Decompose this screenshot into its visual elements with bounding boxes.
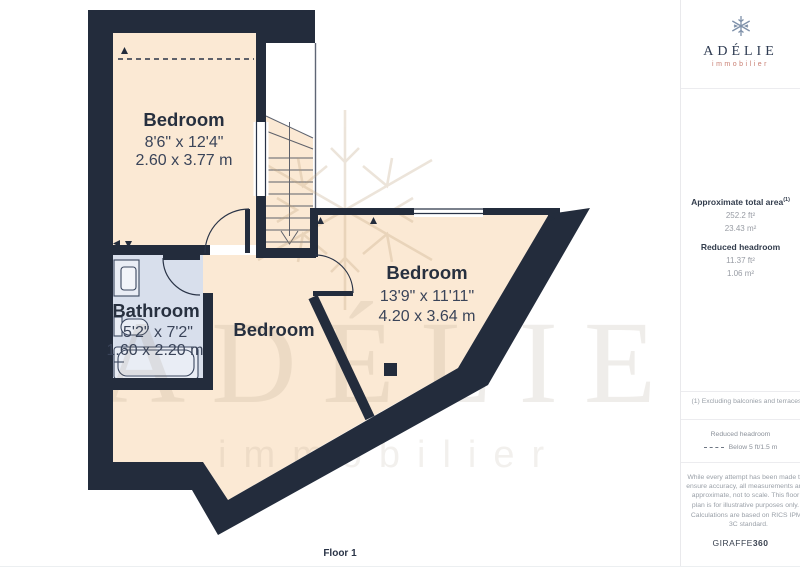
door-leaf [163, 255, 200, 260]
divider [681, 462, 800, 463]
reduced-headroom-title: Reduced headroom [681, 242, 800, 252]
legend-row: Below 5 ft/1.5 m [681, 444, 800, 451]
room-label-bedroom-right: Bedroom [386, 262, 467, 283]
legend-title: Reduced headroom [681, 431, 800, 438]
area-footnote: (1) Excluding balconies and terraces [681, 398, 800, 405]
room-dim-metric: 2.60 x 3.77 m [136, 152, 233, 169]
room-label-bedroom-middle: Bedroom [233, 319, 314, 340]
disclaimer-text: While every attempt has been made to ens… [681, 473, 800, 510]
floorplan-svg: ADÉLIE immobilier [0, 0, 680, 566]
room-dim-imperial: 8'6" x 12'4" [145, 134, 224, 151]
info-panel: ADÉLIE immobilier Approximate total area… [680, 0, 800, 566]
standard-text: Calculations are based on RICS IPMS 3C s… [681, 511, 800, 529]
reduced-headroom-metric: 1.06 m² [681, 269, 800, 278]
logo-name: ADÉLIE [681, 44, 800, 60]
floorplan-canvas: ADÉLIE immobilier [0, 0, 680, 566]
floor-label: Floor 1 [323, 548, 357, 559]
logo [681, 14, 800, 43]
total-area-imperial: 252.2 ft² [681, 211, 800, 220]
column [384, 363, 397, 376]
room-label-bathroom: Bathroom [112, 300, 199, 321]
giraffe360-brand: GIRAFFE360 [681, 538, 800, 548]
room-dim-metric: 1.60 x 2.20 m [107, 342, 204, 359]
area-stats: Approximate total area(1) 252.2 ft² 23.4… [681, 188, 800, 278]
divider [681, 391, 800, 392]
watermark-tagline: immobilier [218, 434, 561, 476]
legend-label: Below 5 ft/1.5 m [729, 444, 778, 451]
door-leaf [313, 291, 353, 296]
door-leaf [245, 209, 250, 253]
sink-basin-icon [121, 267, 136, 290]
total-area-title: Approximate total area(1) [681, 197, 800, 207]
snowflake-icon [730, 14, 752, 38]
divider [681, 419, 800, 420]
room-dim-metric: 4.20 x 3.64 m [379, 308, 476, 325]
room-fills [113, 33, 549, 500]
floorplan-page: ADÉLIE immobilier [0, 0, 800, 567]
logo-tagline: immobilier [681, 61, 800, 68]
room-label-bedroom-top: Bedroom [143, 109, 224, 130]
dashed-line-swatch [704, 447, 724, 448]
total-area-metric: 23.43 m² [681, 224, 800, 233]
divider [681, 88, 800, 89]
bedroom-window-icon [414, 206, 483, 218]
room-dim-imperial: 13'9" x 11'11" [380, 288, 474, 305]
footnote-ref: (1) [783, 197, 790, 203]
room-dim-imperial: 5'2" x 7'2" [123, 324, 193, 341]
stair-window-icon [254, 122, 269, 196]
reduced-headroom-imperial: 11.37 ft² [681, 256, 800, 265]
